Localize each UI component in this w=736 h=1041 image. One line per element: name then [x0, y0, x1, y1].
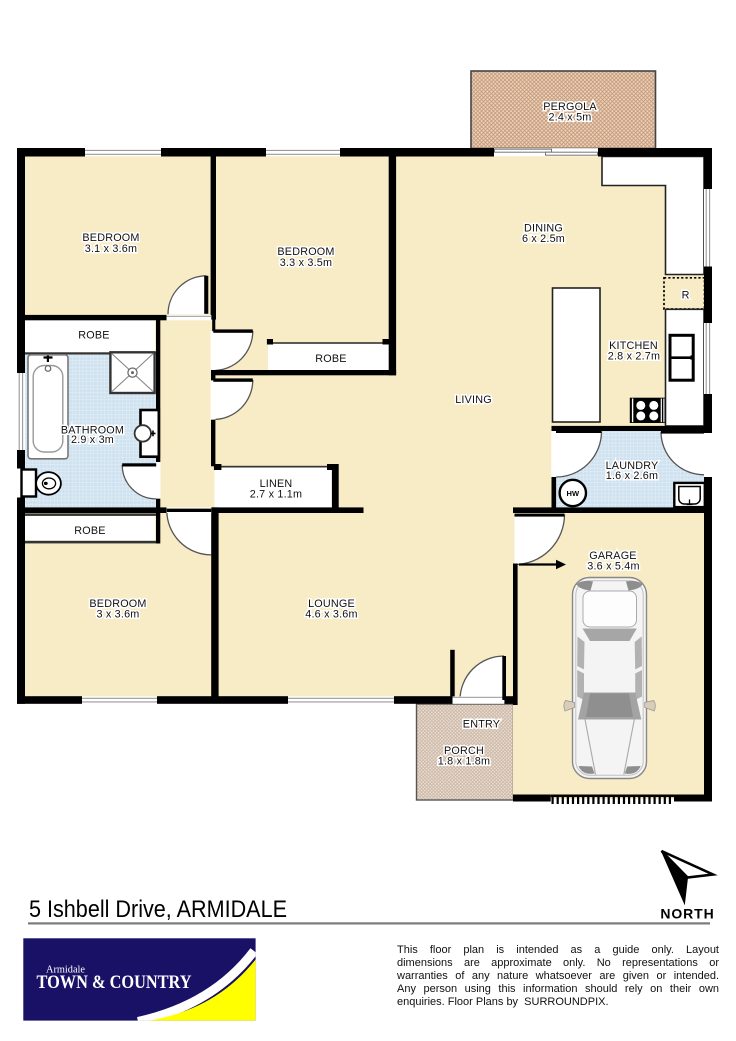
svg-text:ENTRY: ENTRY: [463, 719, 500, 731]
svg-text:ROBE: ROBE: [78, 330, 109, 342]
svg-text:LIVING: LIVING: [455, 394, 492, 406]
svg-text:6 x 2.5m: 6 x 2.5m: [522, 233, 565, 245]
svg-text:2.4 x 5m: 2.4 x 5m: [548, 112, 591, 124]
svg-text:HW: HW: [567, 489, 580, 498]
svg-text:TOWN & COUNTRY: TOWN & COUNTRY: [37, 973, 193, 993]
svg-text:2.7 x 1.1m: 2.7 x 1.1m: [250, 489, 302, 501]
svg-text:1.6 x 2.6m: 1.6 x 2.6m: [606, 470, 658, 482]
svg-text:4.6 x 3.6m: 4.6 x 3.6m: [305, 609, 357, 621]
svg-text:3.6 x 5.4m: 3.6 x 5.4m: [587, 561, 639, 573]
svg-text:1.8 x 1.8m: 1.8 x 1.8m: [438, 756, 490, 768]
svg-text:5 Ishbell Drive, ARMIDALE: 5 Ishbell Drive, ARMIDALE: [29, 896, 287, 923]
svg-text:3 x 3.6m: 3 x 3.6m: [96, 609, 139, 621]
svg-text:3.1 x 3.6m: 3.1 x 3.6m: [85, 243, 137, 255]
svg-text:ROBE: ROBE: [74, 525, 105, 537]
svg-text:R: R: [682, 290, 690, 302]
svg-text:NORTH: NORTH: [660, 906, 714, 922]
svg-text:ROBE: ROBE: [315, 353, 346, 365]
svg-text:2.8 x 2.7m: 2.8 x 2.7m: [608, 351, 660, 363]
svg-text:2.9 x 3m: 2.9 x 3m: [71, 434, 114, 446]
svg-text:3.3 x 3.5m: 3.3 x 3.5m: [280, 257, 332, 269]
